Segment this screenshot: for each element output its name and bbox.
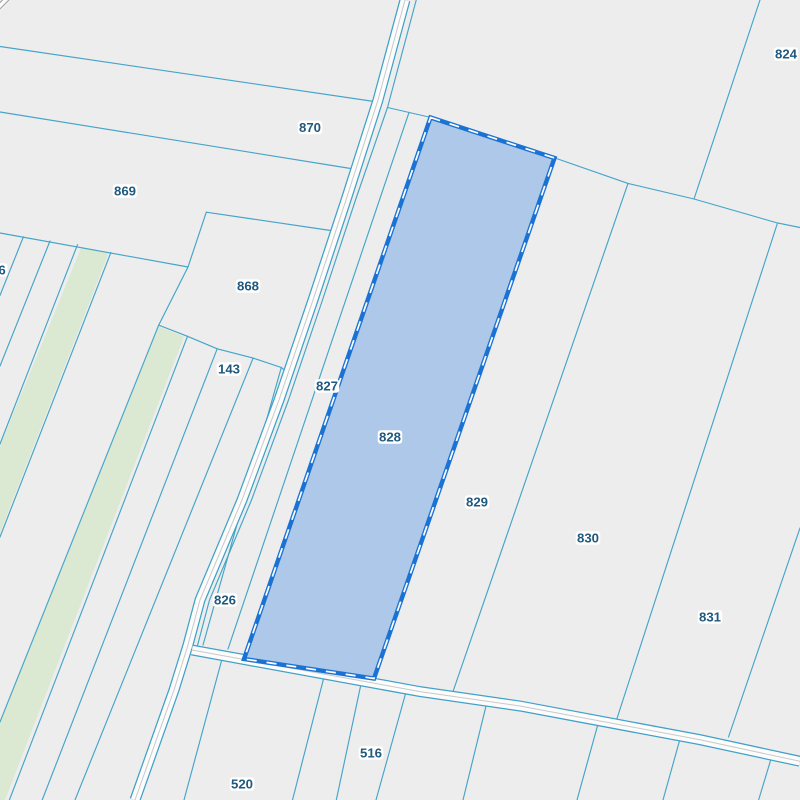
svg-text:830: 830	[577, 531, 599, 546]
svg-text:827: 827	[316, 379, 338, 394]
svg-text:868: 868	[237, 279, 259, 294]
svg-text:829: 829	[466, 495, 488, 510]
svg-text:520: 520	[231, 777, 253, 792]
svg-text:828: 828	[379, 430, 401, 445]
svg-text:831: 831	[699, 610, 721, 625]
svg-text:869: 869	[114, 184, 136, 199]
svg-text:824: 824	[775, 47, 798, 62]
svg-text:870: 870	[299, 120, 321, 135]
svg-text:143: 143	[218, 362, 240, 377]
svg-text:6: 6	[0, 263, 6, 278]
svg-text:516: 516	[360, 746, 382, 761]
svg-text:826: 826	[214, 593, 236, 608]
